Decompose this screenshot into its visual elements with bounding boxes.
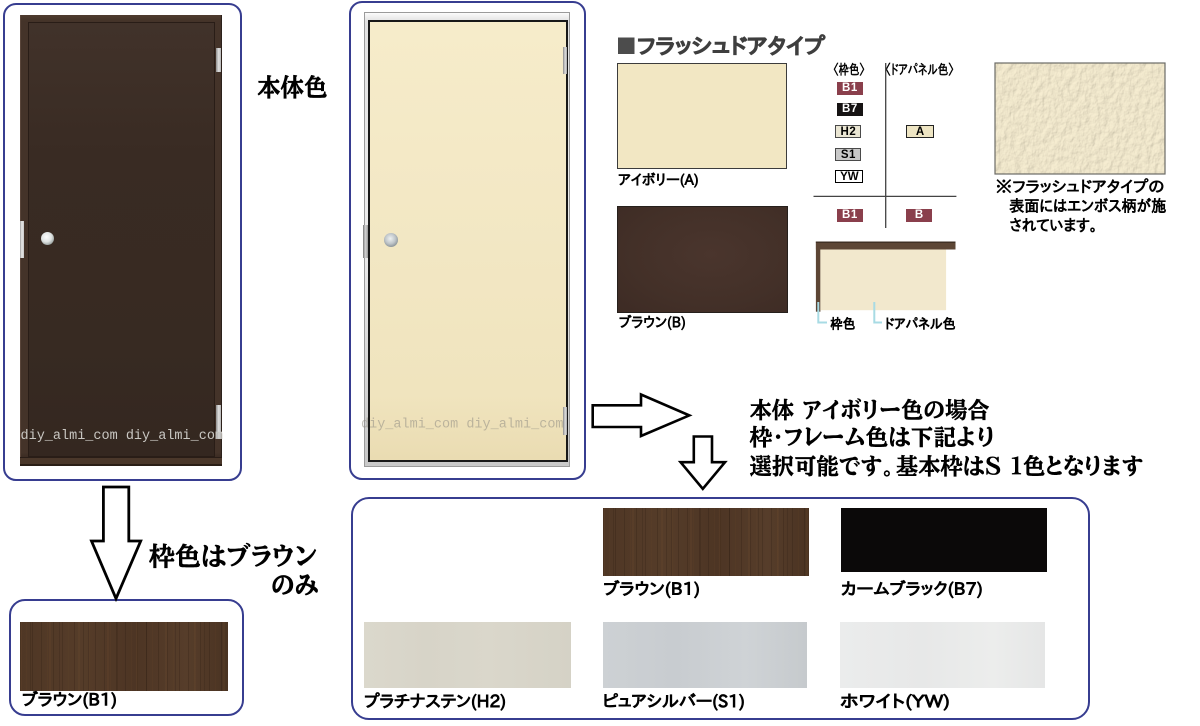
svg-text:diy_almi_com diy_almi_com: diy_almi_com diy_almi_com [21, 429, 224, 444]
svg-text:diy_almi_com diy_almi_com: diy_almi_com diy_almi_com [361, 418, 564, 433]
